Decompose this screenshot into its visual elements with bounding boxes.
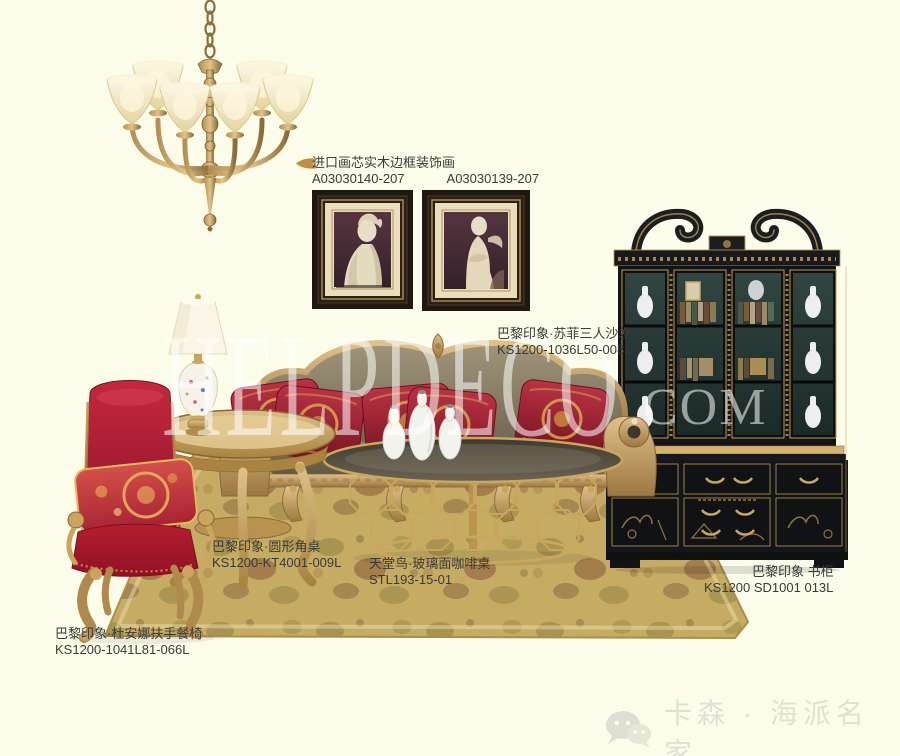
coffee-table-image [322, 436, 624, 568]
wechat-icon [604, 708, 652, 752]
chandelier-chain [206, 1, 215, 58]
sofa-label-code: KS1200-1036L50-008L [497, 342, 631, 358]
side-table-label: 巴黎印象·圆形角桌 KS1200-KT4001-009L [212, 539, 341, 571]
chair-label: 巴黎印象·杜安娜扶手餐椅 KS1200-1041L81-066L [55, 626, 202, 658]
sofa-label: 巴黎印象·苏菲三人沙发 KS1200-1036L50-008L [497, 326, 631, 358]
paintings-label-title: 进口画芯实木边框装饰画 [312, 155, 539, 171]
coffee-table-label-title: 天堂鸟·玻璃面咖啡桌 [369, 556, 490, 572]
sofa-label-title: 巴黎印象·苏菲三人沙发 [497, 326, 631, 342]
paintings-label: 进口画芯实木边框装饰画 A03030140-207A03030139-207 [312, 155, 539, 187]
chair-label-code: KS1200-1041L81-066L [55, 642, 202, 658]
decor-vases-image [376, 386, 468, 462]
painting-right-code: A03030139-207 [447, 171, 540, 186]
side-table-label-title: 巴黎印象·圆形角桌 [212, 539, 341, 555]
chair-label-title: 巴黎印象·杜安娜扶手餐椅 [55, 626, 202, 642]
coffee-table-label-code: STL193-15-01 [369, 572, 490, 588]
painting-left [312, 190, 413, 309]
chair-pillow [74, 458, 198, 534]
coffee-table-label: 天堂鸟·玻璃面咖啡桌 STL193-15-01 [369, 556, 490, 588]
bookcase-label-title: 巴黎印象 书柜 [752, 564, 834, 580]
armchair-image [48, 372, 248, 644]
painting-left-code: A03030140-207 [312, 171, 405, 186]
brand-name: 卡森 · 海派名家 [664, 692, 900, 756]
chandelier-image [100, 0, 320, 245]
side-table-label-code: KS1200-KT4001-009L [212, 555, 341, 571]
bookcase-label: 巴黎印象 书柜 KS1200 SD1001 013L [704, 564, 834, 596]
furniture-catalog-page: 进口画芯实木边框装饰画 A03030140-207A03030139-207 巴… [0, 0, 900, 756]
footer-brand: 卡森 · 海派名家 [604, 688, 900, 756]
painting-right [422, 190, 530, 311]
bookcase-label-code: KS1200 SD1001 013L [704, 580, 834, 596]
